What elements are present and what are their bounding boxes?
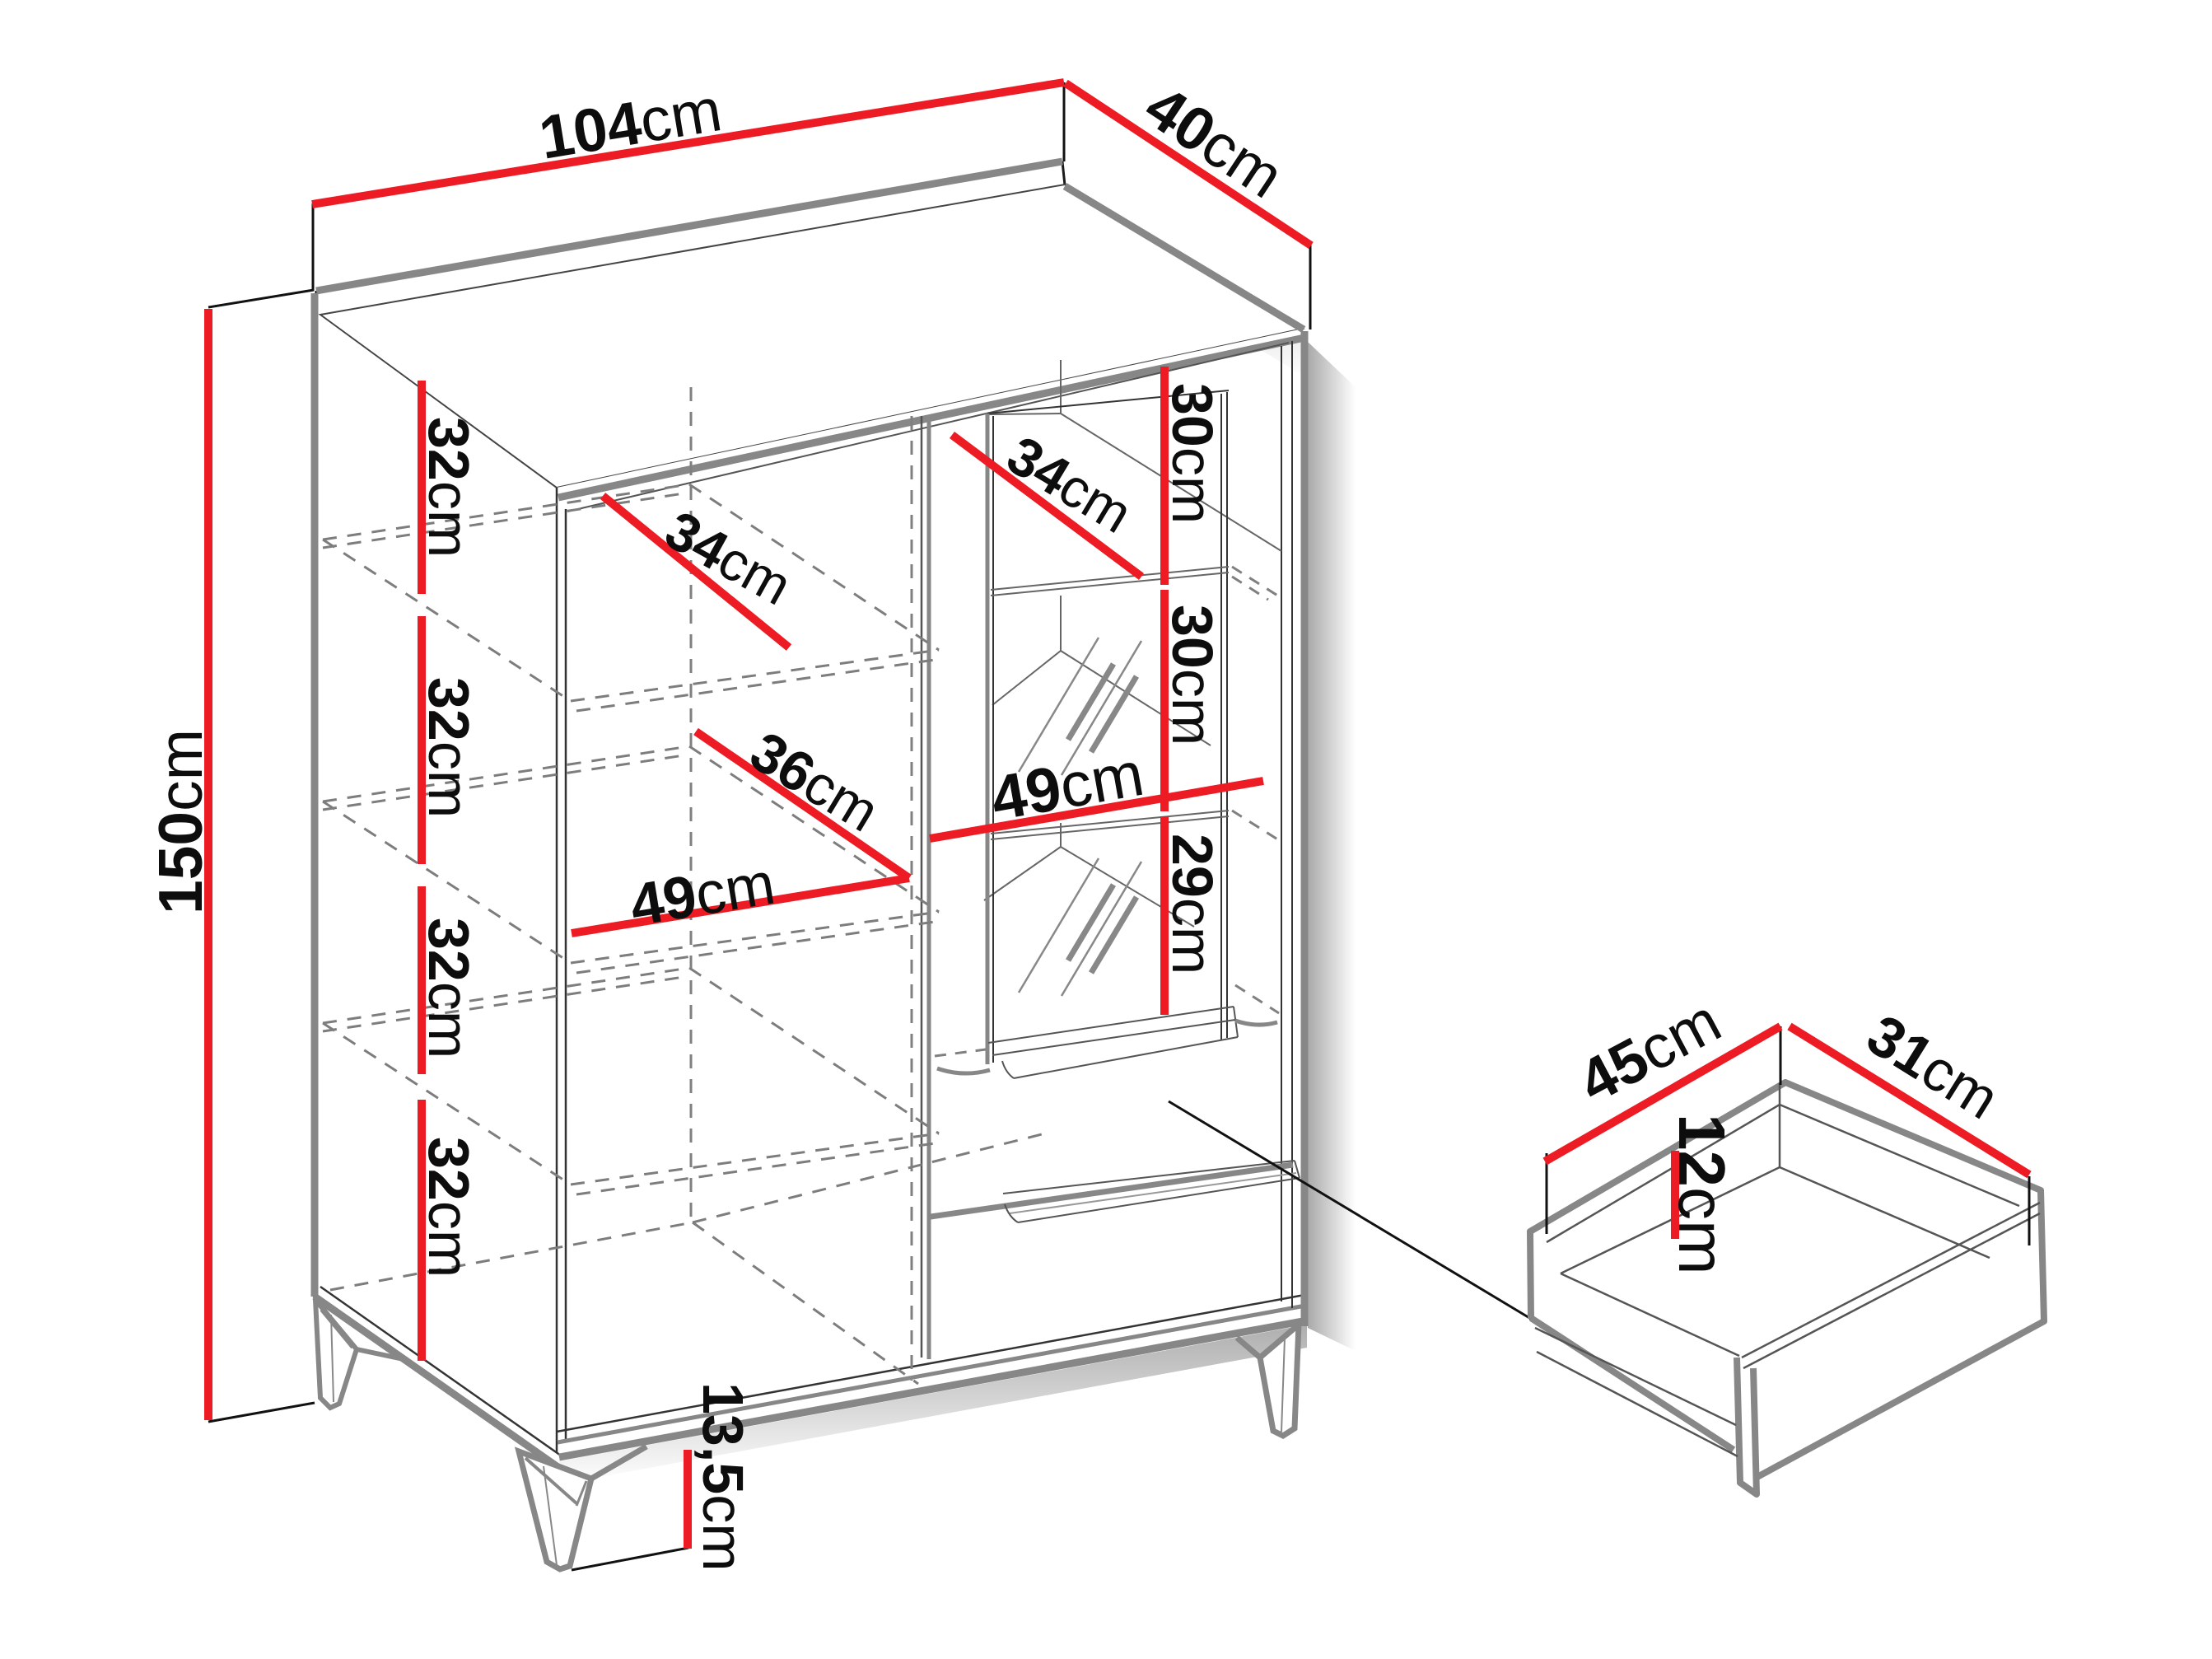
svg-text:32cm: 32cm — [417, 918, 481, 1058]
svg-text:12cm: 12cm — [1665, 1114, 1738, 1275]
svg-text:32cm: 32cm — [417, 1137, 481, 1278]
svg-text:40cm: 40cm — [1133, 72, 1295, 211]
svg-text:30cm: 30cm — [1160, 605, 1225, 745]
svg-text:32cm: 32cm — [417, 677, 481, 818]
svg-text:29cm: 29cm — [1160, 834, 1225, 974]
svg-text:49cm: 49cm — [626, 850, 780, 938]
svg-text:30cm: 30cm — [1160, 383, 1225, 524]
svg-text:36cm: 36cm — [740, 720, 889, 844]
svg-text:150cm: 150cm — [146, 729, 215, 914]
svg-text:13,5cm: 13,5cm — [691, 1382, 755, 1572]
svg-text:45cm: 45cm — [1568, 986, 1732, 1116]
svg-text:32cm: 32cm — [417, 417, 481, 558]
svg-text:104cm: 104cm — [534, 75, 726, 172]
